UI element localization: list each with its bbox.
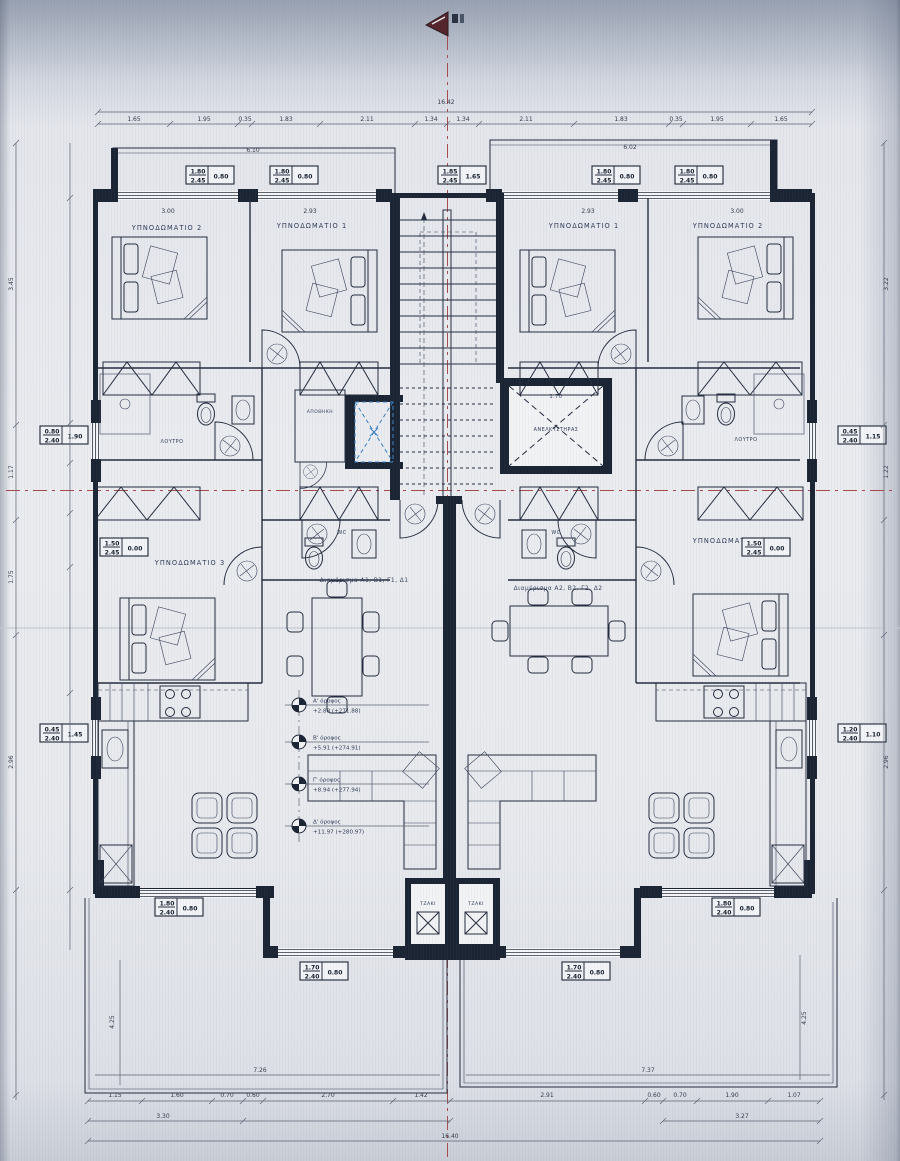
svg-text:1.10: 1.10 — [866, 731, 881, 738]
svg-text:Α' όροφος: Α' όροφος — [313, 698, 341, 705]
svg-text:1.34: 1.34 — [456, 116, 470, 123]
svg-text:2.40: 2.40 — [160, 909, 175, 916]
door-bedroom3-left — [224, 547, 262, 585]
window — [91, 720, 100, 756]
north-arrow — [426, 12, 464, 36]
svg-text:1.65: 1.65 — [127, 116, 141, 123]
svg-text:0.45: 0.45 — [45, 727, 60, 734]
sink-wc-left — [352, 530, 376, 558]
room-label: WC — [551, 530, 560, 536]
elevator: 1.70 ΑΝΕΛΚΥΣΤΗΡΑΣ — [500, 378, 612, 474]
svg-text:1.75: 1.75 — [8, 570, 15, 584]
svg-text:+8.94 (+277.94): +8.94 (+277.94) — [313, 788, 361, 794]
svg-text:1.85: 1.85 — [443, 169, 458, 176]
dim-bottom2-right: 3.27 — [735, 1113, 749, 1120]
kitchen-left — [98, 683, 248, 886]
svg-text:1.80: 1.80 — [680, 169, 695, 176]
level-marker: Γ' όροφος +8.94 (+277.94) — [285, 777, 429, 794]
svg-text:0.80: 0.80 — [328, 969, 343, 976]
window-tag: 0.452.401.15 — [838, 426, 886, 444]
svg-text:Β' όροφος: Β' όροφος — [313, 735, 341, 742]
svg-text:0.80: 0.80 — [740, 905, 755, 912]
svg-text:2.40: 2.40 — [843, 437, 858, 444]
window-tag: 1.502.450.00 — [742, 538, 790, 556]
room-label: WC — [337, 530, 346, 536]
svg-text:0.70: 0.70 — [220, 1092, 234, 1099]
sink-bath-right — [682, 396, 704, 424]
svg-text:3.00: 3.00 — [161, 208, 175, 215]
wardrobe — [520, 487, 598, 520]
window-tag: 1.702.400.80 — [562, 962, 610, 980]
svg-text:1.15: 1.15 — [866, 433, 881, 440]
svg-text:0.35: 0.35 — [669, 116, 683, 123]
svg-text:+5.91 (+274.91): +5.91 (+274.91) — [313, 746, 361, 752]
terrace-door-window — [506, 948, 620, 957]
svg-text:0.80: 0.80 — [590, 969, 605, 976]
svg-text:0.80: 0.80 — [45, 429, 60, 436]
svg-text:1.22: 1.22 — [883, 465, 890, 479]
svg-text:1.34: 1.34 — [424, 116, 438, 123]
svg-text:Δ' όροφος: Δ' όροφος — [313, 819, 341, 826]
svg-text:1.20: 1.20 — [843, 727, 858, 734]
shower-bath-right — [754, 374, 804, 434]
window — [258, 191, 376, 200]
svg-text:1.70: 1.70 — [305, 965, 320, 972]
party-wall-stub — [436, 496, 462, 504]
svg-text:1.95: 1.95 — [197, 116, 211, 123]
terrace-bottom-right — [460, 898, 837, 1087]
svg-text:1.50: 1.50 — [747, 541, 762, 548]
door-bedroom1-left — [262, 330, 300, 368]
fireplace-label-right: ΤΖΑΚΙ — [467, 901, 484, 907]
svg-text:0.80: 0.80 — [620, 173, 635, 180]
apartment-label-left: Διαμέρισμα Α1, Β1, Γ1, Δ1 — [320, 577, 409, 584]
balcony-top-left — [111, 148, 395, 196]
svg-text:1.80: 1.80 — [717, 901, 732, 908]
bed-bedroom3-left — [120, 598, 215, 680]
room-label: ΛΟΥΤΡΟ — [735, 437, 758, 443]
svg-text:0.35: 0.35 — [238, 116, 252, 123]
svg-text:2.40: 2.40 — [45, 437, 60, 444]
svg-text:2.45: 2.45 — [191, 177, 206, 184]
window — [91, 423, 100, 459]
svg-text:0.80: 0.80 — [298, 173, 313, 180]
svg-text:2.40: 2.40 — [567, 973, 582, 980]
dining-set-left — [287, 581, 379, 713]
svg-text:0.00: 0.00 — [770, 545, 785, 552]
dim-overall-bottom: 16.40 — [441, 1133, 458, 1140]
door-bedroom1-right — [598, 330, 636, 368]
room-label: ΥΠΝΟΔΩΜΑΤΙΟ 2 — [692, 222, 764, 230]
lounge-seats-left — [192, 793, 257, 858]
floor-plan-drawing: 1.70 ΑΝΕΛΚΥΣΤΗΡΑΣ ΑΠΟΘΗΚΗ ΤΖΑΚΙ ΤΖΑΚΙ — [0, 0, 900, 1161]
svg-text:0.60: 0.60 — [647, 1092, 661, 1099]
svg-text:0.80: 0.80 — [703, 173, 718, 180]
level-marker: Β' όροφος +5.91 (+274.91) — [285, 735, 429, 752]
elevator-label: ΑΝΕΛΚΥΣΤΗΡΑΣ — [534, 427, 579, 433]
window-tag: 1.802.450.80 — [270, 166, 318, 184]
dims-right: 3.22 1.22 2.96 — [881, 140, 890, 1100]
svg-text:2.40: 2.40 — [843, 735, 858, 742]
party-wall — [443, 504, 456, 884]
svg-text:2.45: 2.45 — [680, 177, 695, 184]
svg-text:1.83: 1.83 — [614, 116, 628, 123]
bed-bedroom2-right — [698, 237, 793, 319]
window-tag: 1.202.401.10 — [838, 724, 886, 742]
window — [118, 191, 238, 200]
svg-text:1.50: 1.50 — [105, 541, 120, 548]
door-entry-left — [400, 500, 438, 538]
window — [140, 889, 256, 898]
svg-text:2.70: 2.70 — [321, 1092, 335, 1099]
svg-text:0.60: 0.60 — [246, 1092, 260, 1099]
svg-text:2.96: 2.96 — [8, 755, 15, 769]
svg-text:1.90: 1.90 — [725, 1092, 739, 1099]
svg-text:1.17: 1.17 — [8, 465, 15, 479]
svg-text:0.00: 0.00 — [128, 545, 143, 552]
svg-text:2.45: 2.45 — [275, 177, 290, 184]
north-label-icon — [452, 14, 458, 23]
svg-text:4.25: 4.25 — [109, 1015, 116, 1029]
dim-bottom2-left: 3.30 — [156, 1113, 170, 1120]
svg-text:2.45: 2.45 — [597, 177, 612, 184]
dims-left: 3.45 1.17 1.75 2.96 — [8, 140, 73, 1100]
svg-text:1.15: 1.15 — [108, 1092, 122, 1099]
door-storage — [300, 462, 327, 489]
window-tag: 0.802.401.90 — [40, 426, 88, 444]
window-tag: 1.702.400.80 — [300, 962, 348, 980]
wardrobe — [698, 487, 803, 520]
svg-text:2.45: 2.45 — [105, 549, 120, 556]
window — [638, 191, 770, 200]
window-tag: 1.802.450.80 — [186, 166, 234, 184]
svg-text:+2.88 (+271.88): +2.88 (+271.88) — [313, 709, 361, 715]
window — [502, 191, 618, 200]
svg-text:2.93: 2.93 — [581, 208, 595, 215]
window-tag: 1.802.400.80 — [155, 898, 203, 916]
door-bedroom3-right — [636, 547, 674, 585]
lounge-seats-right — [649, 793, 714, 858]
kitchen-right — [656, 683, 806, 886]
room-label: ΥΠΝΟΔΩΜΑΤΙΟ 2 — [131, 224, 203, 232]
svg-text:2.11: 2.11 — [360, 116, 374, 123]
svg-text:1.07: 1.07 — [787, 1092, 801, 1099]
storage-room: ΑΠΟΘΗΚΗ — [295, 390, 345, 462]
room-label: ΥΠΝΟΔΩΜΑΤΙΟ 1 — [276, 222, 348, 230]
room-label: ΥΠΝΟΔΩΜΑΤΙΟ 1 — [548, 222, 620, 230]
svg-text:0.45: 0.45 — [843, 429, 858, 436]
sink-wc-right — [522, 530, 546, 558]
svg-text:7.37: 7.37 — [641, 1067, 655, 1074]
sofa-left — [308, 752, 439, 869]
bed-bedroom1-right — [520, 250, 615, 332]
room-label: ΛΟΥΤΡΟ — [161, 439, 184, 445]
svg-text:2.40: 2.40 — [45, 735, 60, 742]
svg-text:1.42: 1.42 — [414, 1092, 428, 1099]
storage-label: ΑΠΟΘΗΚΗ — [307, 409, 333, 415]
svg-text:3.22: 3.22 — [883, 277, 890, 291]
window-tag: 1.802.400.80 — [712, 898, 760, 916]
svg-text:2.96: 2.96 — [883, 755, 890, 769]
level-markers: Α' όροφος +2.88 (+271.88) Β' όροφος +5.9… — [285, 690, 429, 845]
window-tag: 1.802.450.80 — [675, 166, 723, 184]
svg-text:0.80: 0.80 — [183, 905, 198, 912]
svg-text:7.26: 7.26 — [253, 1067, 267, 1074]
dims-terrace: 4.25 4.25 7.26 7.37 — [95, 955, 830, 1085]
dim-balcony-left: 6.10 — [246, 147, 260, 154]
room-label: ΥΠΝΟΔΩΜΑΤΙΟ 3 — [154, 559, 226, 567]
svg-text:1.80: 1.80 — [597, 169, 612, 176]
door-entry-right — [462, 500, 500, 538]
svg-text:1.80: 1.80 — [275, 169, 290, 176]
wardrobe — [95, 487, 200, 520]
window — [808, 720, 817, 756]
dim-balcony-right: 6.02 — [623, 144, 637, 151]
wardrobe — [103, 362, 200, 395]
sink-bath-left — [232, 396, 254, 424]
dim-overall-top: 16.42 — [437, 99, 454, 106]
window — [662, 889, 774, 898]
svg-text:1.65: 1.65 — [466, 173, 481, 180]
bed-bedroom1-left — [282, 250, 377, 332]
svg-text:Γ' όροφος: Γ' όροφος — [313, 777, 340, 784]
svg-text:0.70: 0.70 — [673, 1092, 687, 1099]
svg-text:0.80: 0.80 — [214, 173, 229, 180]
svg-text:2.93: 2.93 — [303, 208, 317, 215]
sofa-right — [465, 752, 596, 869]
dims-bottom: 1.15 1.60 0.70 0.60 2.70 1.42 2.91 0.60 … — [85, 1092, 823, 1144]
bed-bedroom2-left — [112, 237, 207, 319]
svg-text:2.45: 2.45 — [443, 177, 458, 184]
window-tag: 1.802.450.80 — [592, 166, 640, 184]
toilet-bath-right — [717, 394, 735, 425]
svg-text:1.60: 1.60 — [170, 1092, 184, 1099]
level-marker: Α' όροφος +2.88 (+271.88) — [285, 698, 429, 715]
chimney-fireplaces: ΤΖΑΚΙ ΤΖΑΚΙ — [405, 878, 500, 960]
floor-plan-photo: 1.70 ΑΝΕΛΚΥΣΤΗΡΑΣ ΑΠΟΘΗΚΗ ΤΖΑΚΙ ΤΖΑΚΙ — [0, 0, 900, 1161]
svg-text:2.40: 2.40 — [717, 909, 732, 916]
svg-text:1.83: 1.83 — [279, 116, 293, 123]
terrace-door-window — [278, 948, 393, 957]
svg-text:+11.97 (+280.97): +11.97 (+280.97) — [313, 830, 364, 836]
svg-text:1.65: 1.65 — [774, 116, 788, 123]
svg-text:3.00: 3.00 — [730, 208, 744, 215]
svg-text:3.45: 3.45 — [8, 277, 15, 291]
svg-text:2.45: 2.45 — [747, 549, 762, 556]
svg-text:1.70: 1.70 — [567, 965, 582, 972]
level-marker: Δ' όροφος +11.97 (+280.97) — [285, 819, 429, 836]
bed-bedroom3-right — [693, 594, 788, 676]
wardrobe — [698, 362, 802, 395]
toilet-bath-left — [197, 394, 215, 425]
door-bath-left — [215, 422, 253, 460]
window-tag: 0.452.401.45 — [40, 724, 88, 742]
svg-text:2.11: 2.11 — [519, 116, 533, 123]
svg-text:2.91: 2.91 — [540, 1092, 554, 1099]
window-tag: 1.852.451.65 — [438, 166, 486, 184]
dining-set-right — [492, 589, 625, 673]
svg-text:1.80: 1.80 — [160, 901, 175, 908]
window-tag: 1.502.450.00 — [100, 538, 148, 556]
window-tags: 1.802.450.80 1.802.450.80 1.852.451.65 1… — [40, 166, 886, 980]
svg-text:1.95: 1.95 — [710, 116, 724, 123]
fireplace-label-left: ΤΖΑΚΙ — [419, 901, 436, 907]
window — [808, 423, 817, 459]
svg-text:2.40: 2.40 — [305, 973, 320, 980]
wardrobe — [300, 487, 378, 520]
svg-text:4.25: 4.25 — [801, 1011, 808, 1025]
svg-text:1.80: 1.80 — [191, 169, 206, 176]
apartment-label-right: Διαμέρισμα Α2, Β2, Γ2, Δ2 — [514, 585, 603, 592]
door-bath-right — [645, 422, 683, 460]
